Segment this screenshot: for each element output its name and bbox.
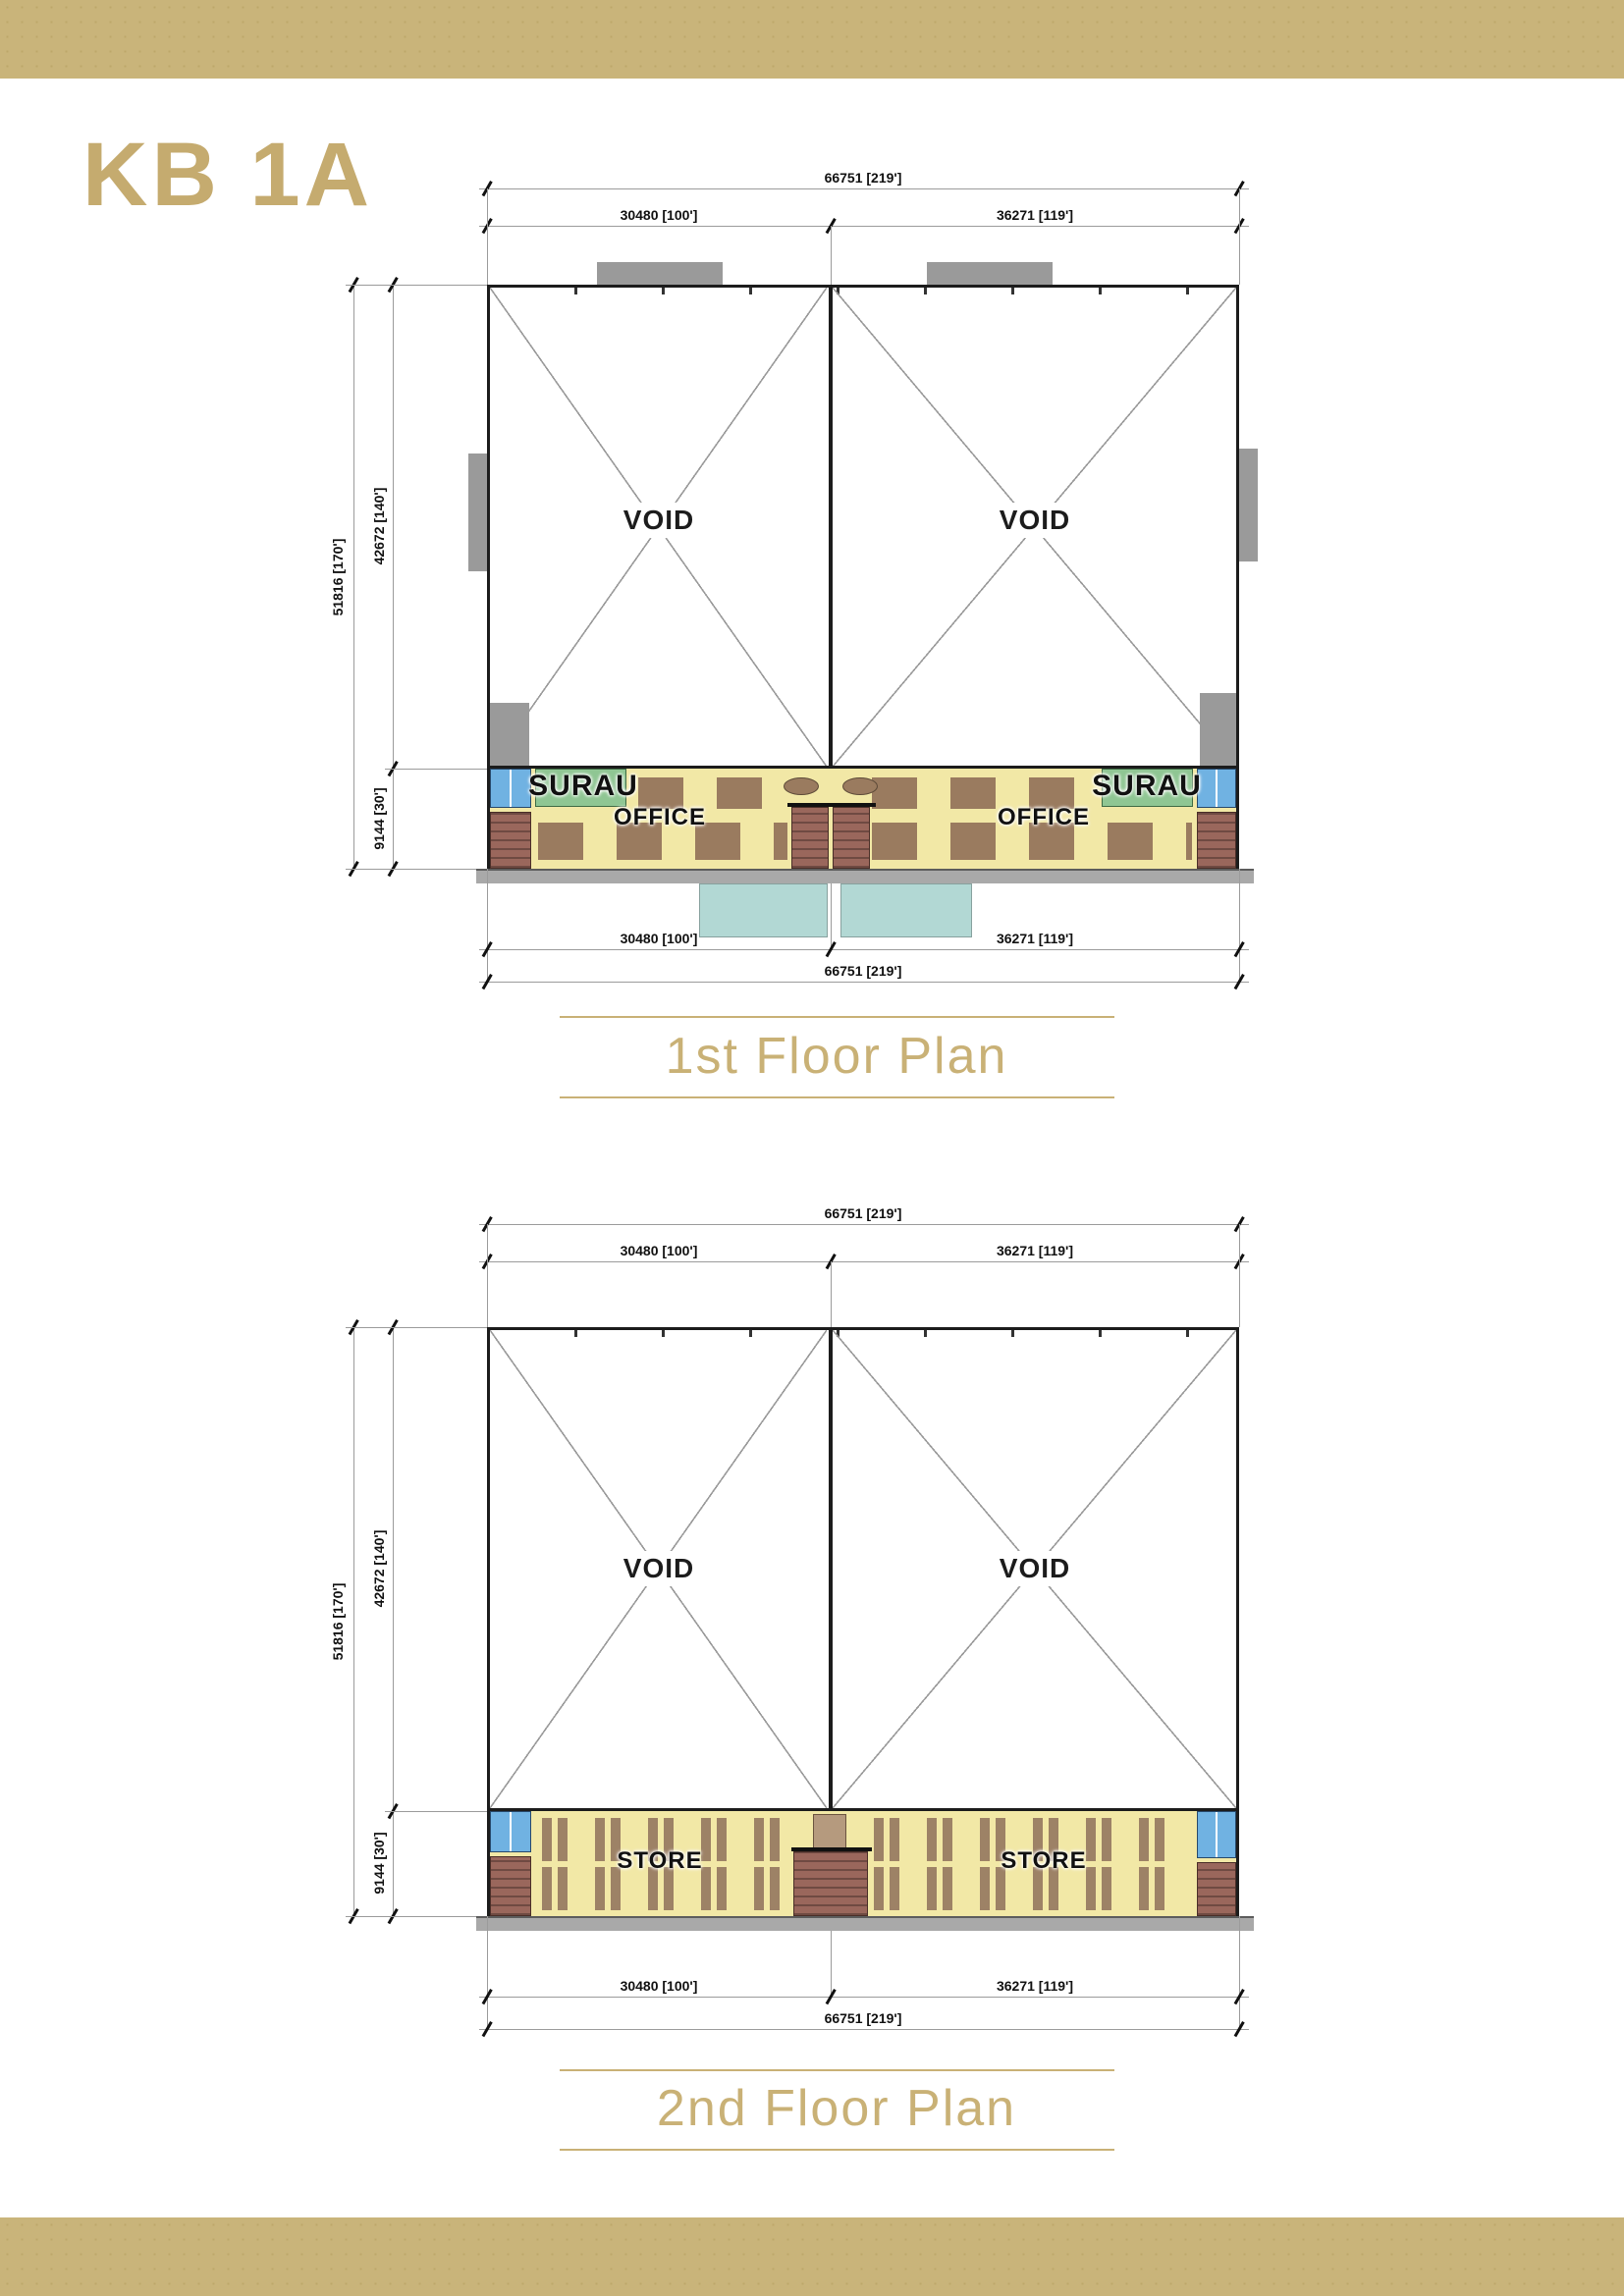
void-label-left-1f: VOID [614, 503, 704, 538]
dim-label-left-bay-bottom-2f: 30480 [100'] [621, 1978, 698, 1997]
dim-label-right-bay-top-2f: 36271 [119'] [997, 1243, 1073, 1261]
staircase-left-2f [490, 1856, 531, 1916]
dim-label-overall-width-top-2f: 66751 [219'] [825, 1205, 902, 1224]
entrance-canopy-left [699, 883, 828, 937]
dim-label-right-bay-bottom-1f: 36271 [119'] [997, 931, 1073, 949]
extension-line [385, 769, 490, 770]
dim-label-right-bay-top-1f: 36271 [119'] [997, 207, 1073, 226]
extension-line [1239, 1224, 1240, 1327]
title-rule-top-2f [560, 2069, 1114, 2071]
title-rule-bottom-2f [560, 2149, 1114, 2151]
extension-line [346, 869, 476, 870]
toilet-right-2f [1197, 1811, 1236, 1858]
dim-line-inner-depth-1f [393, 285, 394, 869]
dim-label-void-depth-2f: 42672 [140'] [371, 1530, 387, 1608]
dim-line-overall-top-2f [479, 1224, 1249, 1225]
office-label-right: OFFICE [998, 804, 1090, 831]
staircase-center-2f [793, 1851, 868, 1916]
dim-line-bays-bottom-2f [479, 1997, 1249, 1998]
roof-tab [597, 262, 723, 285]
dim-label-front-depth-1f: 9144 [30'] [371, 787, 387, 849]
front-walkway-2f [476, 1916, 1254, 1931]
front-walkway-1f [476, 869, 1254, 883]
toilet-right-1f [1197, 769, 1236, 808]
dim-line-bays-top-2f [479, 1261, 1249, 1262]
staircase-right-1f [1197, 812, 1236, 869]
staircase-left-1f [490, 812, 531, 869]
extension-line [346, 285, 487, 286]
extension-line [1239, 188, 1240, 285]
top-border-bar [0, 0, 1624, 79]
bottom-border-bar [0, 2217, 1624, 2296]
store-label-left: STORE [617, 1847, 702, 1875]
title-rule-top-1f [560, 1016, 1114, 1018]
interior-gray-block-right [1200, 693, 1236, 768]
extension-line [831, 1931, 832, 1997]
side-attachment-left [468, 454, 488, 571]
title-rule-bottom-1f [560, 1096, 1114, 1098]
second-floor-plan-title: 2nd Floor Plan [657, 2079, 1016, 2138]
dim-label-overall-depth-1f: 51816 [170'] [330, 539, 346, 616]
staircase-center-right-1f [833, 807, 870, 869]
staircase-right-2f [1197, 1862, 1236, 1916]
extension-line [346, 1327, 489, 1328]
extension-line [831, 883, 832, 949]
dim-label-left-bay-bottom-1f: 30480 [100'] [621, 931, 698, 949]
void-label-left-2f: VOID [614, 1551, 704, 1586]
dim-line-bays-top-1f [479, 226, 1249, 227]
roof-tab [927, 262, 1053, 285]
dim-label-right-bay-bottom-2f: 36271 [119'] [997, 1978, 1073, 1997]
first-floor-plan-title: 1st Floor Plan [666, 1027, 1008, 1086]
dim-label-overall-width-bottom-1f: 66751 [219'] [825, 963, 902, 982]
extension-line [487, 1224, 488, 1327]
unit-code-title: KB 1A [82, 130, 373, 220]
office-label-left: OFFICE [614, 804, 706, 831]
extension-line [831, 1261, 832, 1327]
surau-label-left: SURAU [528, 770, 638, 803]
dim-line-overall-depth-1f [353, 285, 354, 869]
dim-line-overall-top-1f [479, 188, 1249, 189]
meeting-table [842, 777, 878, 795]
dim-line-overall-bottom-2f [479, 2029, 1249, 2030]
extension-line [831, 226, 832, 285]
extension-line [385, 1811, 490, 1812]
store-label-right: STORE [1001, 1847, 1086, 1875]
void-label-right-2f: VOID [990, 1551, 1080, 1586]
interior-gray-block-left [490, 703, 529, 768]
dim-label-overall-width-top-1f: 66751 [219'] [825, 170, 902, 188]
dim-label-void-depth-1f: 42672 [140'] [371, 488, 387, 565]
entrance-canopy-right [840, 883, 972, 937]
brochure-page: KB 1A 66751 [219'] 30480 [100'] 36271 [1… [0, 0, 1624, 2296]
dim-label-left-bay-top-1f: 30480 [100'] [621, 207, 698, 226]
surau-label-right: SURAU [1092, 770, 1202, 803]
toilet-left-2f [490, 1811, 531, 1852]
dim-label-overall-width-bottom-2f: 66751 [219'] [825, 2010, 902, 2029]
staircase-center-left-1f [791, 807, 829, 869]
dim-line-inner-depth-2f [393, 1327, 394, 1916]
extension-line [346, 1916, 476, 1917]
void-label-right-1f: VOID [990, 503, 1080, 538]
dim-label-overall-depth-2f: 51816 [170'] [330, 1583, 346, 1661]
dim-line-overall-bottom-1f [479, 982, 1249, 983]
meeting-table [784, 777, 819, 795]
dim-label-left-bay-top-2f: 30480 [100'] [621, 1243, 698, 1261]
extension-line [1239, 869, 1240, 982]
dim-line-bays-bottom-1f [479, 949, 1249, 950]
dim-label-front-depth-2f: 9144 [30'] [371, 1832, 387, 1894]
side-attachment-right [1238, 449, 1258, 561]
extension-line [487, 1916, 488, 2029]
dim-line-overall-depth-2f [353, 1327, 354, 1916]
extension-line [1239, 1916, 1240, 2029]
lift-block [813, 1814, 846, 1849]
extension-line [487, 188, 488, 285]
extension-line [487, 869, 488, 982]
toilet-left-1f [490, 769, 531, 808]
